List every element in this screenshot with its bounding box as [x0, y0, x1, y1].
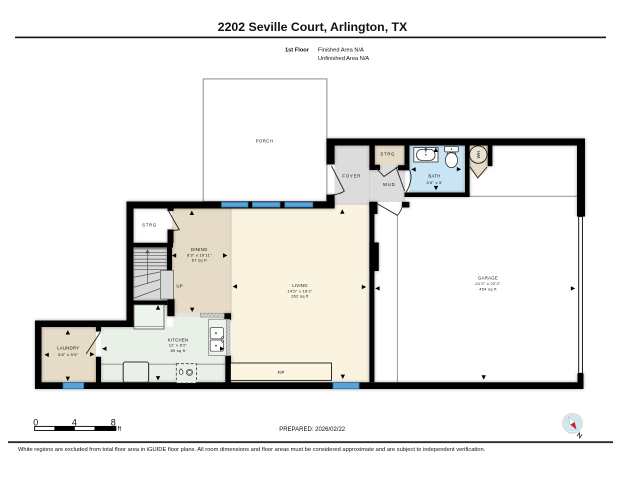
svg-text:BATH: BATH: [428, 174, 440, 179]
svg-text:PREPARED: 2026/02/22: PREPARED: 2026/02/22: [279, 427, 346, 433]
svg-text:WH: WH: [476, 151, 481, 159]
svg-text:PORCH: PORCH: [256, 139, 274, 144]
svg-text:LIVING: LIVING: [292, 283, 308, 288]
svg-text:21'2" x 22'2": 21'2" x 22'2": [475, 281, 501, 286]
svg-text:UP: UP: [176, 283, 182, 288]
svg-text:ft: ft: [118, 426, 122, 433]
svg-text:Unfinished Area N/A: Unfinished Area N/A: [318, 56, 369, 62]
svg-text:KITCHEN: KITCHEN: [168, 337, 189, 342]
svg-text:STRG: STRG: [380, 152, 395, 157]
svg-text:STRG: STRG: [142, 222, 157, 227]
svg-text:2202 Seville Court, Arlington,: 2202 Seville Court, Arlington, TX: [218, 20, 408, 34]
svg-text:67 sq ft: 67 sq ft: [192, 257, 208, 262]
svg-text:262 sq ft: 262 sq ft: [291, 293, 309, 298]
svg-text:MUD: MUD: [383, 182, 396, 187]
svg-text:5'6" x 5': 5'6" x 5': [426, 180, 442, 185]
svg-text:DINING: DINING: [191, 247, 208, 252]
svg-text:FOYER: FOYER: [342, 173, 361, 178]
svg-text:4: 4: [72, 417, 77, 427]
svg-text:1st Floor: 1st Floor: [285, 48, 310, 54]
svg-text:Finished Area N/A: Finished Area N/A: [318, 48, 364, 54]
svg-text:0: 0: [33, 417, 38, 427]
svg-text:454 sq ft: 454 sq ft: [479, 286, 497, 291]
svg-text:89 sq ft: 89 sq ft: [170, 348, 186, 353]
svg-text:8: 8: [111, 417, 116, 427]
svg-text:White regions are excluded fro: White regions are excluded from total fl…: [18, 447, 486, 453]
svg-text:LAUNDRY: LAUNDRY: [57, 346, 79, 351]
svg-text:GARAGE: GARAGE: [478, 276, 498, 281]
svg-text:5'8" x 5'9": 5'8" x 5'9": [58, 352, 79, 357]
svg-text:F/P: F/P: [278, 370, 285, 375]
